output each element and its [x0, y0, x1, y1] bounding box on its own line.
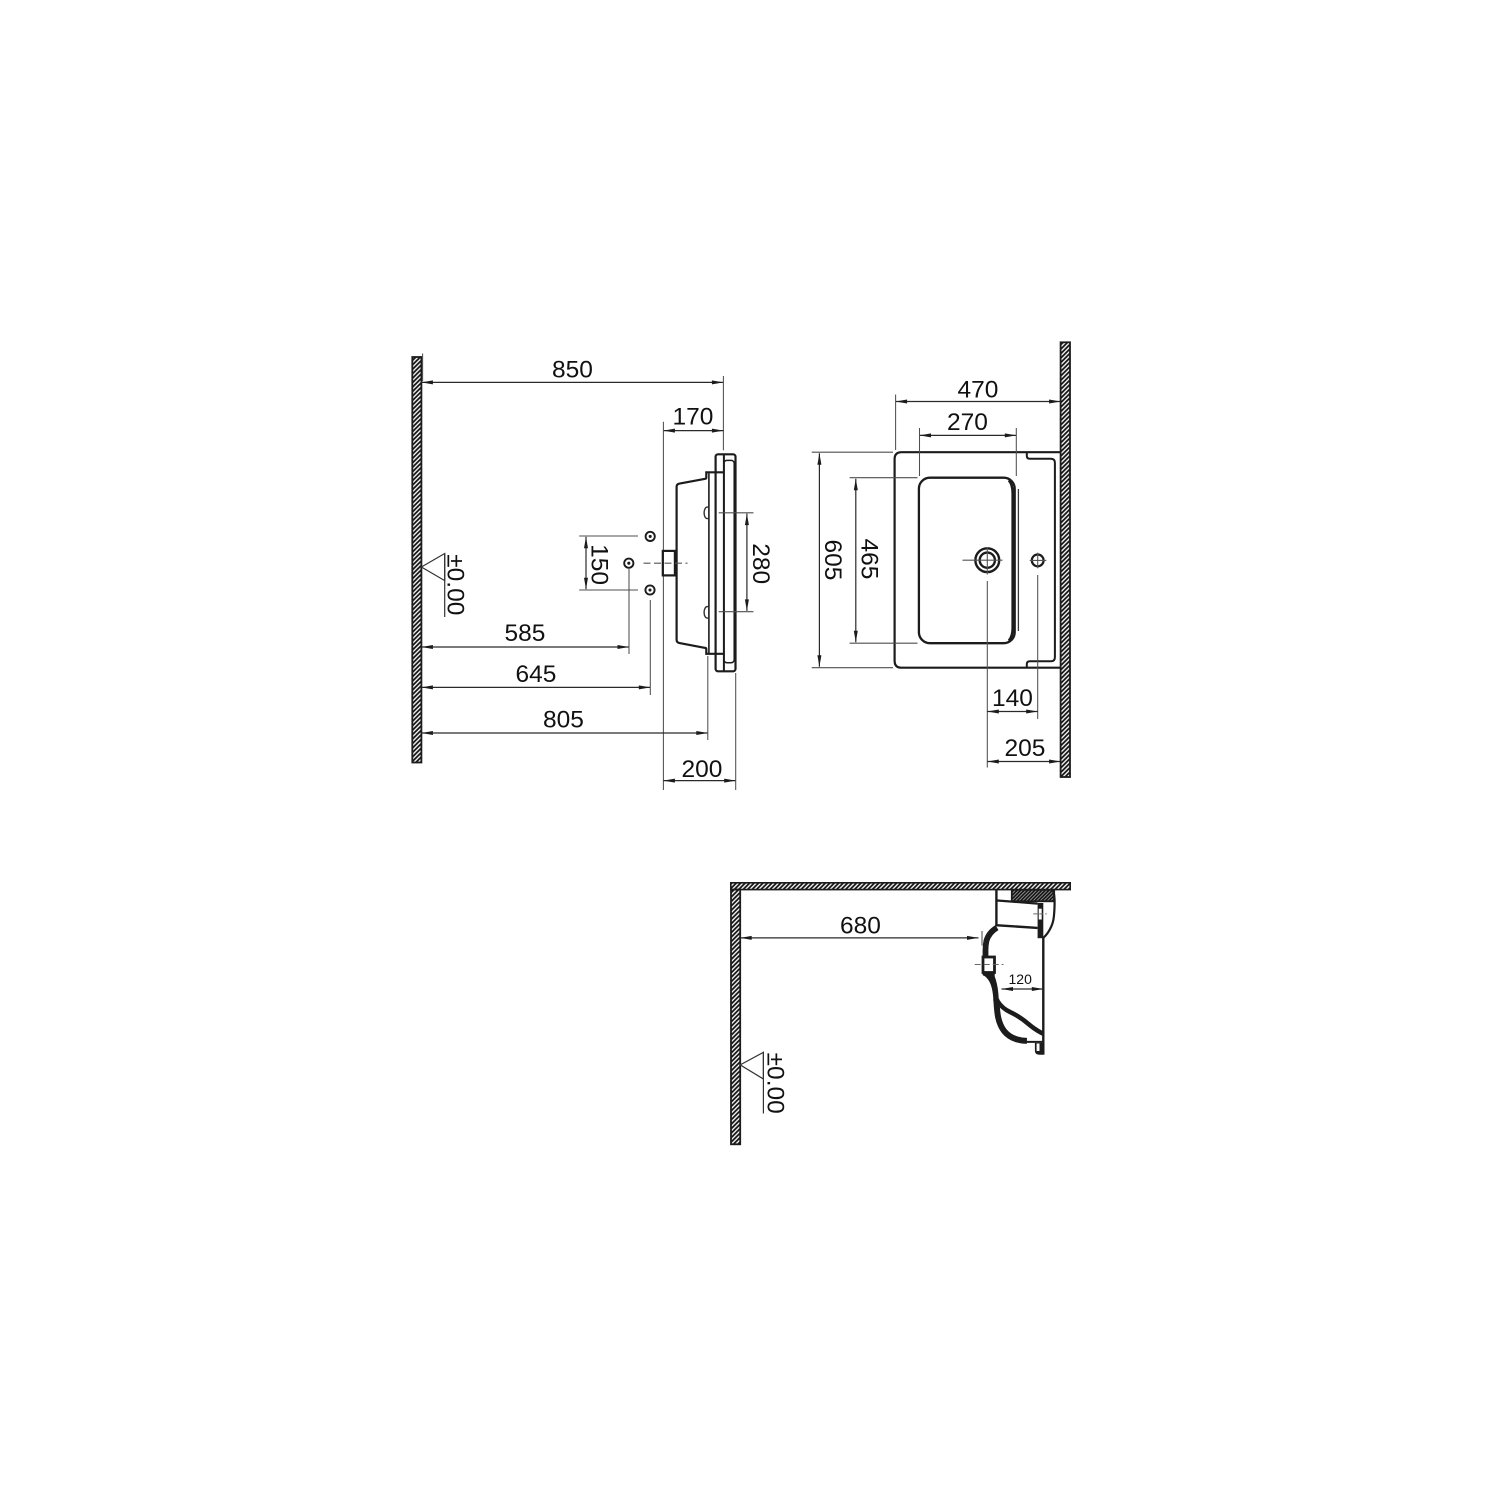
svg-text:140: 140	[992, 685, 1033, 712]
svg-text:465: 465	[856, 539, 883, 580]
svg-text:805: 805	[543, 707, 584, 734]
svg-text:205: 205	[1005, 735, 1046, 762]
svg-text:150: 150	[586, 544, 613, 585]
svg-text:645: 645	[516, 661, 557, 688]
svg-text:200: 200	[682, 756, 723, 783]
svg-text:170: 170	[673, 404, 714, 431]
svg-text:850: 850	[552, 356, 593, 383]
svg-text:±0.00: ±0.00	[441, 554, 468, 615]
svg-text:585: 585	[505, 620, 546, 647]
svg-text:120: 120	[1009, 971, 1033, 987]
svg-text:280: 280	[747, 543, 774, 584]
svg-text:±0.00: ±0.00	[762, 1053, 789, 1114]
svg-text:605: 605	[819, 540, 846, 581]
svg-text:270: 270	[947, 409, 988, 436]
svg-text:470: 470	[958, 376, 999, 403]
svg-text:680: 680	[840, 913, 881, 940]
